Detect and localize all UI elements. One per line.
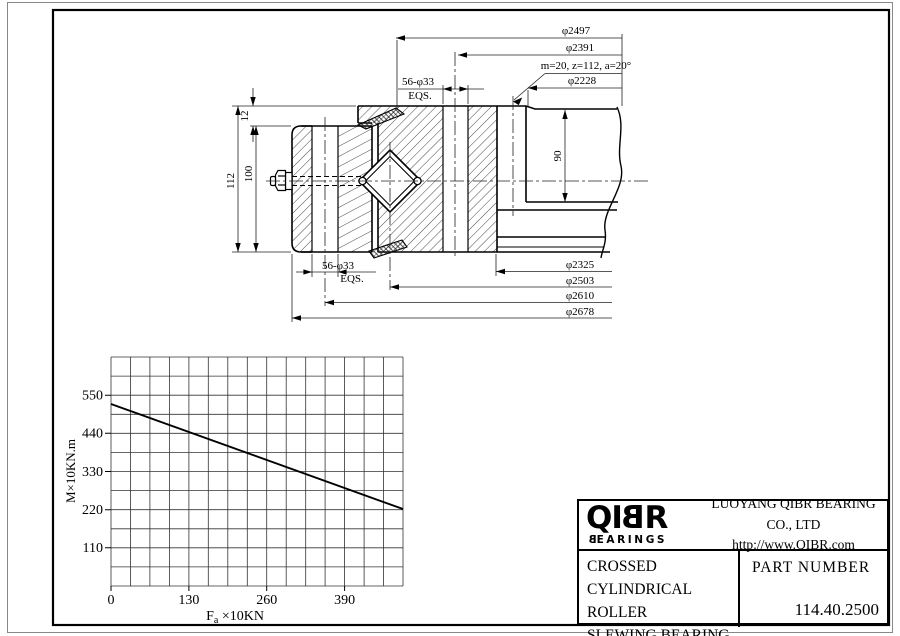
- part-number-label: PART NUMBER: [752, 559, 870, 577]
- dim-gear-width-90: 90: [552, 150, 564, 162]
- chart-data-line: [111, 404, 403, 509]
- chart-grid-horizontal: [111, 357, 403, 586]
- x-tick-260: 260: [256, 593, 277, 608]
- y-tick-220: 220: [82, 503, 103, 518]
- dim-offset-12: 12: [239, 111, 251, 122]
- dim-2503: φ2503: [566, 275, 595, 287]
- x-tick-130: 130: [178, 593, 199, 608]
- drawing-sheet: φ2497 φ2391 m=20, z=112, a=20° φ2228 56-…: [0, 0, 900, 636]
- part-number-cell: PART NUMBER 114.40.2500: [740, 551, 887, 627]
- product-line: SLEWING BEARING: [587, 624, 738, 636]
- dim-height-100: 100: [243, 165, 255, 182]
- chart-ticks: [105, 395, 345, 591]
- y-tick-440: 440: [82, 427, 103, 442]
- outer-ring-left-section: [292, 126, 312, 252]
- dim-height-112: 112: [225, 173, 237, 189]
- grease-nipple: [271, 171, 293, 191]
- dim-od-2228: φ2228: [568, 75, 597, 87]
- y-tick-330: 330: [82, 465, 103, 480]
- x-tick-390: 390: [334, 593, 355, 608]
- y-axis-title: M×10KN.m: [63, 439, 78, 503]
- y-tick-550: 550: [82, 389, 103, 404]
- dim-od-2497: φ2497: [562, 25, 591, 37]
- bolt-bottom-eqs: EQS.: [340, 273, 364, 285]
- dim-2610: φ2610: [566, 290, 595, 302]
- company-info: LUOYANG QIBR BEARING CO., LTD http://www…: [704, 494, 887, 557]
- company-logo: QIBR BEARINGS: [579, 504, 704, 546]
- product-name: CROSSED CYLINDRICAL ROLLER SLEWING BEARI…: [579, 551, 740, 627]
- logo-subtitle: BEARINGS: [586, 534, 667, 546]
- load-chart: 550 440 330 220 110 0 130 260 390 M×10KN…: [63, 357, 403, 626]
- bolt-top-eqs: EQS.: [408, 90, 432, 102]
- part-number-value: 114.40.2500: [795, 600, 879, 620]
- product-line: CROSSED: [587, 555, 738, 578]
- dim-2325: φ2325: [566, 259, 595, 271]
- title-block-header-row: QIBR BEARINGS LUOYANG QIBR BEARING CO., …: [579, 501, 887, 551]
- dim-2678: φ2678: [566, 306, 595, 318]
- x-tick-0: 0: [108, 593, 115, 608]
- dim-od-2391: φ2391: [566, 42, 594, 54]
- logo-wordmark: QIBR: [586, 504, 667, 533]
- gear-spec-label: m=20, z=112, a=20°: [541, 60, 631, 72]
- title-block: QIBR BEARINGS LUOYANG QIBR BEARING CO., …: [577, 499, 889, 625]
- y-tick-110: 110: [83, 541, 103, 556]
- bolt-top-label: 56-φ33: [402, 76, 435, 88]
- x-axis-title: Fa ×10KN: [206, 609, 264, 626]
- bolt-bottom-label: 56-φ33: [322, 260, 355, 272]
- company-name: LUOYANG QIBR BEARING CO., LTD: [704, 494, 883, 536]
- product-line: CYLINDRICAL ROLLER: [587, 578, 738, 624]
- title-block-body-row: CROSSED CYLINDRICAL ROLLER SLEWING BEARI…: [579, 551, 887, 627]
